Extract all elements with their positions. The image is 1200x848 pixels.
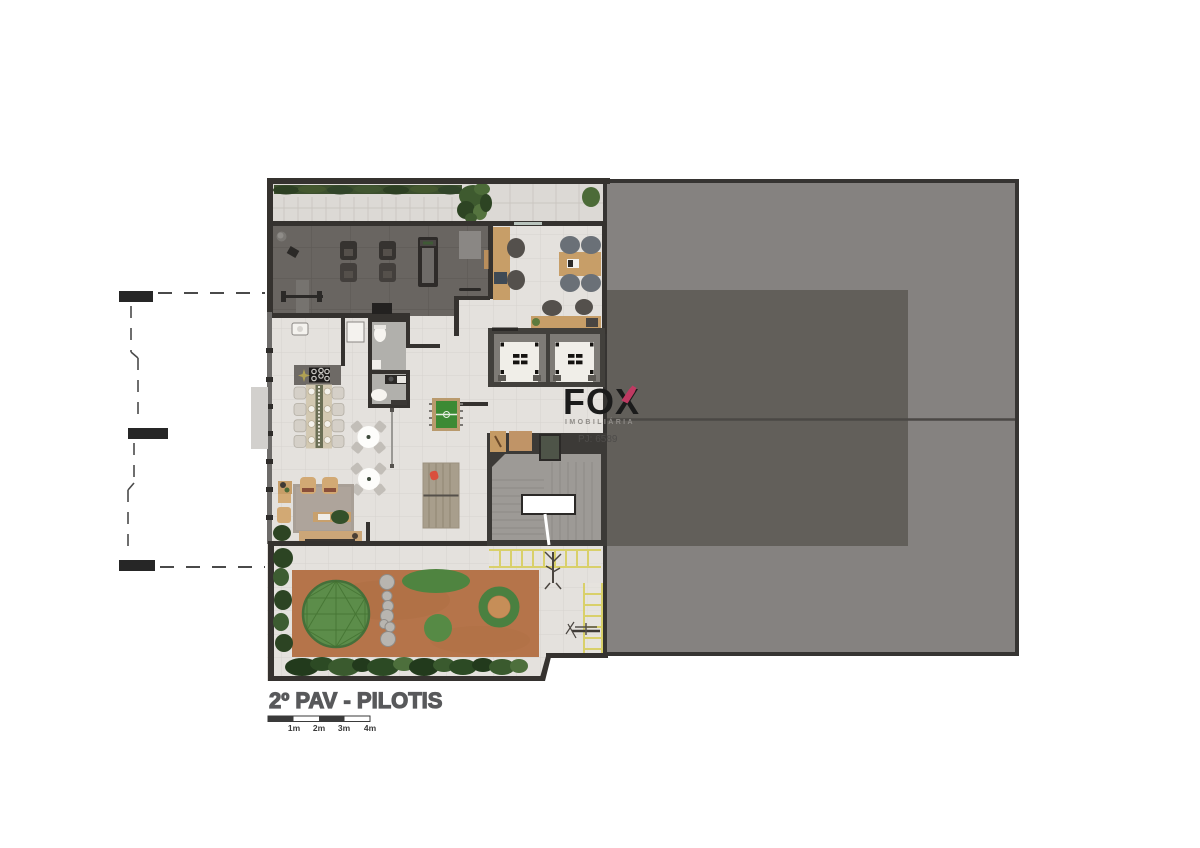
svg-text:1m: 1m (288, 723, 301, 733)
svg-text:IMOBILIÁRIA: IMOBILIÁRIA (565, 417, 635, 426)
svg-text:2m: 2m (313, 723, 326, 733)
svg-text:4m: 4m (364, 723, 377, 733)
svg-text:2º PAV - PILOTIS: 2º PAV - PILOTIS (269, 688, 442, 713)
svg-text:PJ: 6589: PJ: 6589 (578, 434, 618, 445)
svg-text:3m: 3m (338, 723, 351, 733)
